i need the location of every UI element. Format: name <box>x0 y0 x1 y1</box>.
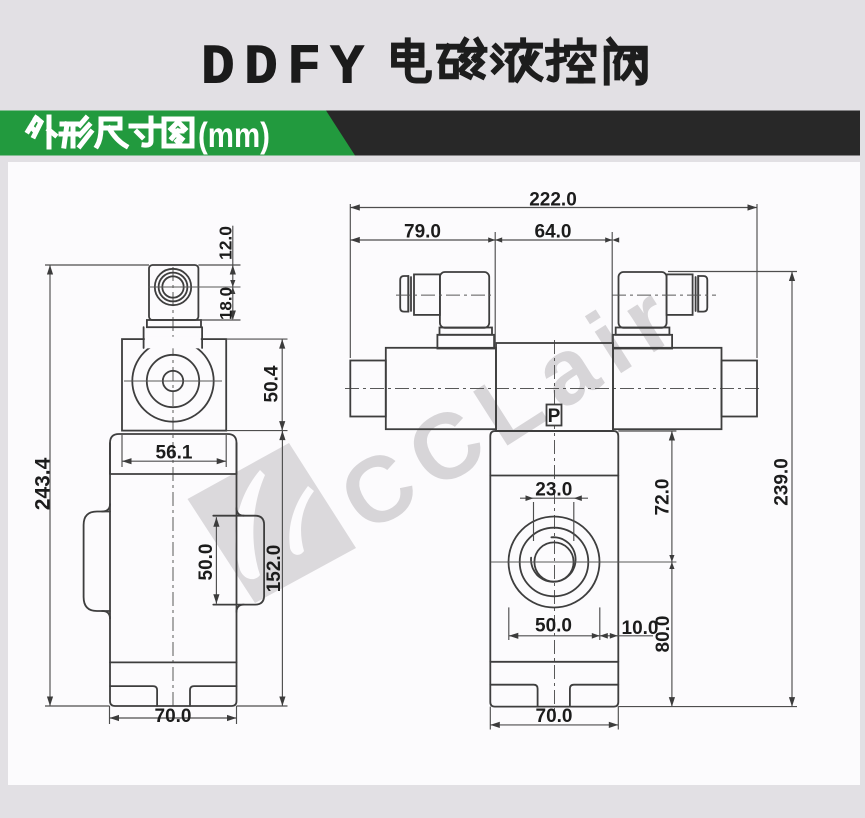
svg-text:72.0: 72.0 <box>653 479 674 516</box>
svg-text:12.0: 12.0 <box>216 226 236 260</box>
svg-text:P: P <box>548 406 561 427</box>
svg-text:79.0: 79.0 <box>404 222 441 243</box>
svg-text:70.0: 70.0 <box>155 706 192 727</box>
svg-text:DDFY: DDFY <box>201 36 373 100</box>
svg-text:50.4: 50.4 <box>262 365 283 402</box>
svg-text:56.1: 56.1 <box>156 443 193 464</box>
svg-text:(mm): (mm) <box>198 116 270 155</box>
svg-text:152.0: 152.0 <box>264 545 285 593</box>
svg-text:23.0: 23.0 <box>535 480 572 501</box>
svg-text:222.0: 222.0 <box>529 190 577 211</box>
svg-text:18.0: 18.0 <box>217 287 236 320</box>
svg-text:243.4: 243.4 <box>32 457 55 510</box>
svg-text:50.0: 50.0 <box>535 616 572 637</box>
svg-text:50.0: 50.0 <box>196 544 217 581</box>
svg-text:64.0: 64.0 <box>535 222 572 243</box>
svg-text:70.0: 70.0 <box>536 706 573 727</box>
svg-text:10.0: 10.0 <box>622 618 659 639</box>
svg-text:239.0: 239.0 <box>772 458 793 506</box>
